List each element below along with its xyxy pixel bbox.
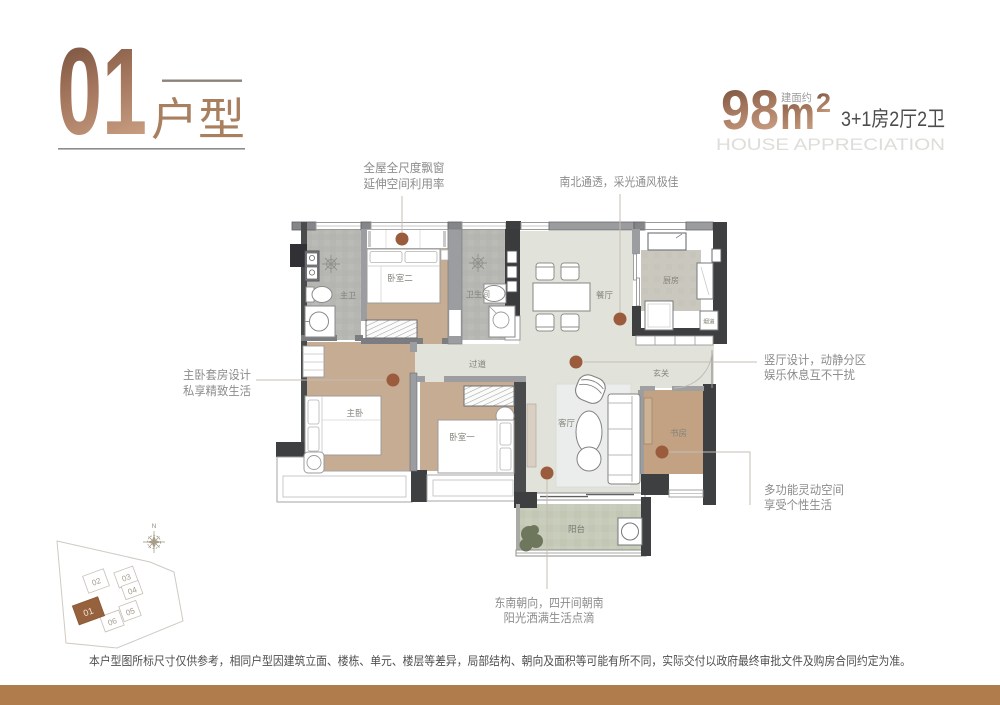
svg-text:主卧: 主卧	[346, 408, 364, 418]
svg-text:延伸空间利用率: 延伸空间利用率	[364, 176, 445, 191]
svg-text:全屋全尺度飘窗: 全屋全尺度飘窗	[364, 160, 445, 175]
svg-text:卧室一: 卧室一	[449, 432, 475, 442]
svg-text:卫生间: 卫生间	[466, 289, 490, 299]
svg-text:主卧套房设计: 主卧套房设计	[183, 367, 251, 382]
svg-text:东南朝向，四开间朝南: 东南朝向，四开间朝南	[495, 595, 604, 610]
svg-text:2: 2	[816, 88, 831, 118]
svg-text:建面约: 建面约	[781, 91, 812, 104]
svg-text:厨房: 厨房	[663, 275, 679, 285]
svg-text:阳光洒满生活点滴: 阳光洒满生活点滴	[504, 610, 595, 625]
svg-text:卧室二: 卧室二	[387, 273, 413, 283]
svg-text:N: N	[152, 523, 157, 530]
svg-text:竖厅设计，动静分区: 竖厅设计，动静分区	[764, 353, 866, 367]
svg-text:本户型图所标尺寸仅供参考，相同户型因建筑立面、楼栋、单元、楼: 本户型图所标尺寸仅供参考，相同户型因建筑立面、楼栋、单元、楼层等差异，局部结构、…	[89, 653, 911, 668]
svg-text:南北通透，采光通风极佳: 南北通透，采光通风极佳	[560, 174, 679, 189]
svg-text:阳台: 阳台	[568, 524, 585, 534]
svg-text:餐厅: 餐厅	[596, 290, 614, 300]
svg-text:客厅: 客厅	[558, 418, 576, 428]
svg-text:玄关: 玄关	[653, 368, 669, 378]
svg-text:烟道: 烟道	[703, 318, 715, 326]
svg-text:娱乐休息互不干扰: 娱乐休息互不干扰	[764, 367, 855, 382]
svg-text:过道: 过道	[469, 359, 487, 369]
svg-text:享受个性生活: 享受个性生活	[764, 497, 832, 512]
svg-text:私享精致生活: 私享精致生活	[183, 383, 251, 398]
svg-text:3+1房2厅2卫: 3+1房2厅2卫	[841, 108, 945, 131]
svg-text:书房: 书房	[670, 428, 687, 438]
svg-text:HOUSE APPRECIATION: HOUSE APPRECIATION	[716, 136, 945, 154]
svg-text:主卫: 主卫	[340, 290, 356, 300]
svg-text:98: 98	[721, 78, 779, 141]
svg-text:多功能灵动空间: 多功能灵动空间	[764, 483, 844, 497]
svg-text:户型: 户型	[151, 94, 245, 145]
svg-text:01: 01	[57, 24, 147, 161]
